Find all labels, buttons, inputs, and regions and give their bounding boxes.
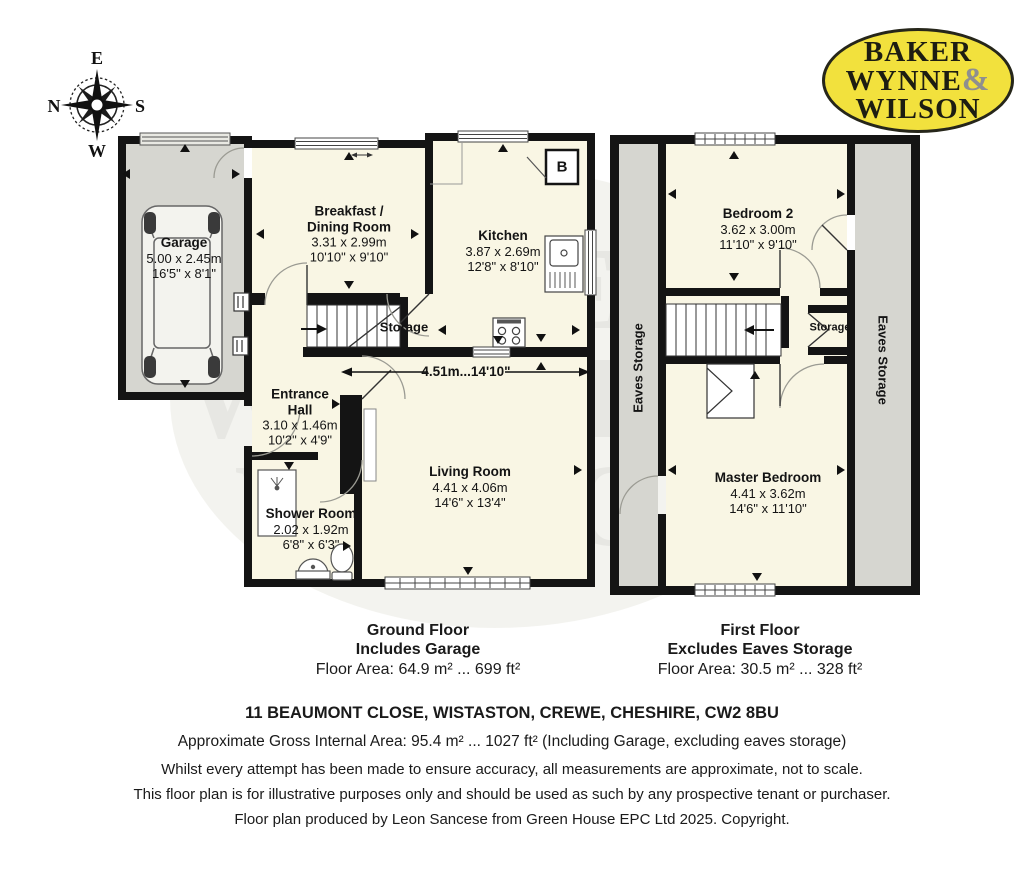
logo-line2: WYNNE& bbox=[846, 65, 991, 95]
disclaimer-line2: This floor plan is for illustrative purp… bbox=[0, 782, 1024, 807]
room-label-master-bedroom: Master Bedroom 4.41 x 3.62m 14'6" x 11'1… bbox=[715, 470, 822, 516]
agency-logo: BAKER WYNNE& WILSON bbox=[822, 28, 1014, 133]
staircase-first bbox=[666, 304, 781, 356]
logo-line3: WILSON bbox=[855, 96, 980, 123]
disclaimer-line1: Whilst every attempt has been made to en… bbox=[0, 757, 1024, 782]
room-label-garage: Garage 5.00 x 2.45m 16'5" x 8'1" bbox=[146, 235, 221, 281]
first-floor-caption: First Floor Excludes Eaves Storage Floor… bbox=[658, 621, 863, 679]
wardrobe-icon bbox=[707, 364, 754, 418]
hatch-window bbox=[473, 347, 510, 357]
property-address: 11 BEAUMONT CLOSE, WISTASTON, CREWE, CHE… bbox=[0, 704, 1024, 723]
room-label-living-room: Living Room 4.41 x 4.06m 14'6" x 13'4" bbox=[429, 464, 511, 510]
disclaimer-line3: Floor plan produced by Leon Sancese from… bbox=[0, 807, 1024, 832]
compass-bottom-letter: W bbox=[88, 141, 106, 160]
disclaimer-text: Whilst every attempt has been made to en… bbox=[0, 757, 1024, 832]
floorplan-page: { "compass": { "top": "E", "left": "N", … bbox=[0, 0, 1024, 874]
compass-top-letter: E bbox=[91, 48, 103, 68]
compass-left-letter: N bbox=[48, 96, 61, 116]
compass-right-letter: S bbox=[135, 96, 145, 116]
chimney-breast bbox=[364, 409, 376, 481]
logo-line1: BAKER bbox=[864, 39, 972, 66]
hall-dimension-text: 4.51m...14'10" bbox=[421, 364, 510, 380]
room-label-kitchen: Kitchen 3.87 x 2.69m 12'8" x 8'10" bbox=[465, 228, 540, 274]
eaves-storage-left-label: Eaves Storage bbox=[630, 323, 645, 413]
kitchen-sink-icon bbox=[545, 236, 583, 292]
room-label-bedroom2: Bedroom 2 3.62 x 3.00m 11'10" x 9'10" bbox=[719, 206, 797, 252]
car-icon bbox=[142, 206, 222, 384]
compass-rose-icon: E N S W bbox=[40, 45, 155, 160]
room-label-storage-ground: Storage bbox=[380, 319, 428, 334]
room-label-entrance-hall: Entrance Hall 3.10 x 1.46m 10'2" x 4'9" bbox=[261, 386, 339, 447]
boiler-letter: B bbox=[557, 158, 568, 175]
eaves-storage-right-label: Eaves Storage bbox=[875, 315, 890, 405]
gross-internal-area: Approximate Gross Internal Area: 95.4 m²… bbox=[0, 733, 1024, 751]
room-label-storage-first: Storage bbox=[810, 322, 851, 335]
room-label-breakfast-dining: Breakfast / Dining Room 3.31 x 2.99m 10'… bbox=[296, 203, 402, 264]
ground-floor-caption: Ground Floor Includes Garage Floor Area:… bbox=[316, 621, 521, 679]
room-label-shower-room: Shower Room 2.02 x 1.92m 6'8" x 6'3" bbox=[266, 506, 357, 552]
